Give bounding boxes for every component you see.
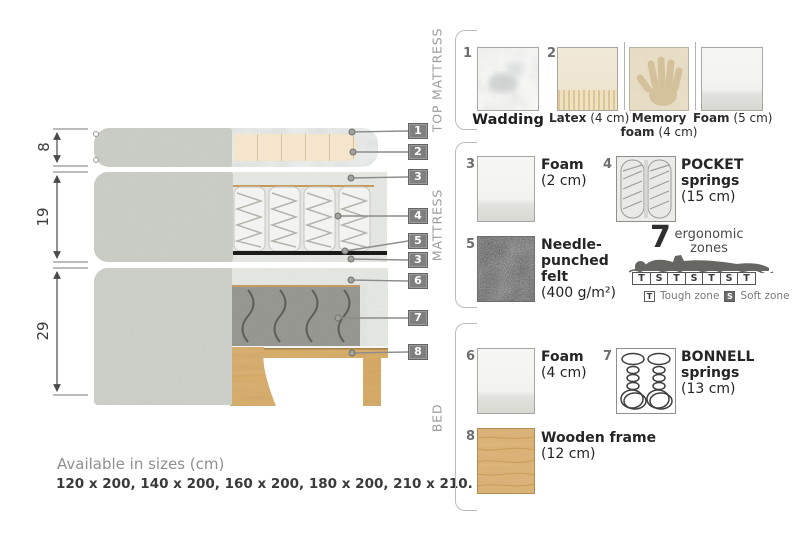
ergonomic-zones-number: 7 xyxy=(650,224,671,252)
callout-badge-3b: 3 xyxy=(408,252,428,268)
mattress-fabric-cover xyxy=(94,172,233,262)
dimension-ticks xyxy=(53,129,88,395)
section-label-bed: BED xyxy=(430,404,445,433)
pocket-springs-swatch xyxy=(616,156,676,222)
zone-box-1: T xyxy=(632,272,651,285)
foam-5cm-name: Foam xyxy=(693,111,730,125)
zone-strip: T S T S T S T xyxy=(632,272,756,285)
wooden-frame-parts xyxy=(230,346,388,407)
dim-label-topper-8: 8 xyxy=(35,142,53,152)
item-number-wadding: 1 xyxy=(458,46,472,61)
zone-box-6: S xyxy=(720,272,739,285)
available-sizes-title: Available in sizes (cm) xyxy=(57,455,224,473)
zone-box-7: T xyxy=(737,272,756,285)
foam-5cm-swatch xyxy=(701,47,763,111)
foam-4cm-label: Foam (4 cm) xyxy=(541,349,625,381)
tough-zone-key: T xyxy=(644,291,655,302)
callout-badge-5: 5 xyxy=(408,233,428,249)
zone-box-3: T xyxy=(667,272,686,285)
item-number-pocket: 4 xyxy=(598,157,612,172)
felt-name: Needle-punched felt xyxy=(541,237,627,285)
zone-box-4: S xyxy=(685,272,704,285)
foam-4cm-name: Foam xyxy=(541,349,625,365)
callout-badge-6: 6 xyxy=(408,273,428,289)
wooden-frame-name: Wooden frame xyxy=(541,430,671,446)
zone-legend: T Tough zone S Soft zone xyxy=(644,290,790,302)
foam-4cm-size: (4 cm) xyxy=(541,365,625,381)
available-sizes-list: 120 x 200, 140 x 200, 160 x 200, 180 x 2… xyxy=(56,476,473,492)
soft-zone-label: Soft zone xyxy=(740,290,789,302)
callout-badge-1: 1 xyxy=(408,123,428,139)
latex-label: Latex (4 cm) xyxy=(549,111,626,125)
bed-cutaway xyxy=(230,268,388,407)
foam-2cm-swatch xyxy=(477,156,535,222)
dim-label-mattress-19: 19 xyxy=(34,207,52,226)
felt-size: (400 g/m²) xyxy=(541,285,627,301)
foam-2cm-label: Foam (2 cm) xyxy=(541,157,625,189)
item-number-felt: 5 xyxy=(461,237,475,252)
bonnell-springs-name: BONNELL springs xyxy=(681,349,767,381)
item-number-bonnell: 7 xyxy=(598,349,612,364)
mattress-construction-infographic: 1 2 3 4 5 3 6 7 8 8 19 29 Available in s… xyxy=(0,0,800,533)
memory-foam-swatch xyxy=(629,47,689,111)
dim-label-bed-29: 29 xyxy=(34,321,52,340)
latex-name: Latex xyxy=(549,111,586,125)
wooden-frame-label: Wooden frame (12 cm) xyxy=(541,430,671,462)
memory-foam-label: Memory foam (4 cm) xyxy=(620,111,698,139)
callout-badge-2: 2 xyxy=(408,144,428,160)
pocket-springs-size: (15 cm) xyxy=(681,189,767,205)
topper-cutaway-wadding xyxy=(226,128,378,167)
latex-swatch xyxy=(557,47,618,111)
bonnell-springs-label: BONNELL springs (13 cm) xyxy=(681,349,767,397)
zone-box-2: S xyxy=(650,272,669,285)
section-label-top-mattress: TOP MATTRESS xyxy=(430,28,445,132)
foam-5cm-label: Foam (5 cm) xyxy=(693,111,771,125)
wadding-label: Wadding xyxy=(465,112,551,128)
sleeping-person-silhouette xyxy=(629,252,773,273)
topper-cutaway-latex-blocks xyxy=(234,134,356,161)
topper-fabric-cover xyxy=(94,128,232,167)
swatch-divider-2 xyxy=(695,42,696,110)
wadding-swatch xyxy=(477,47,539,111)
swatch-divider-1 xyxy=(624,42,625,110)
foam-4cm-swatch xyxy=(477,348,535,414)
bed-fabric-cover xyxy=(94,268,232,405)
felt-swatch xyxy=(477,236,535,302)
callout-badge-8: 8 xyxy=(408,344,428,360)
foam-5cm-size: (5 cm) xyxy=(733,111,772,125)
tough-zone-label: Tough zone xyxy=(660,290,719,302)
item-number-wood: 8 xyxy=(461,429,475,444)
bonnell-springs-swatch xyxy=(616,348,676,414)
callout-badge-3: 3 xyxy=(408,169,428,185)
mattress-cutaway xyxy=(230,172,387,262)
pocket-springs-name: POCKET springs xyxy=(681,157,767,189)
felt-label: Needle-punched felt (400 g/m²) xyxy=(541,237,627,301)
wooden-frame-size: (12 cm) xyxy=(541,446,671,462)
wooden-frame-swatch xyxy=(477,428,535,494)
section-label-mattress: MATTRESS xyxy=(430,189,445,261)
item-number-foam4: 6 xyxy=(461,349,475,364)
item-number-latex: 2 xyxy=(542,46,556,61)
soft-zone-key: S xyxy=(724,291,735,302)
foam-2cm-size: (2 cm) xyxy=(541,173,625,189)
callout-badge-7: 7 xyxy=(408,310,428,326)
pocket-springs-label: POCKET springs (15 cm) xyxy=(681,157,767,205)
memory-foam-size: (4 cm) xyxy=(658,125,697,139)
foam-2cm-name: Foam xyxy=(541,157,625,173)
zone-box-5: T xyxy=(702,272,721,285)
item-number-foam2: 3 xyxy=(461,157,475,172)
callout-badge-4: 4 xyxy=(408,208,428,224)
ergonomic-caption-line1: ergonomic xyxy=(675,227,744,242)
bonnell-springs-size: (13 cm) xyxy=(681,381,767,397)
